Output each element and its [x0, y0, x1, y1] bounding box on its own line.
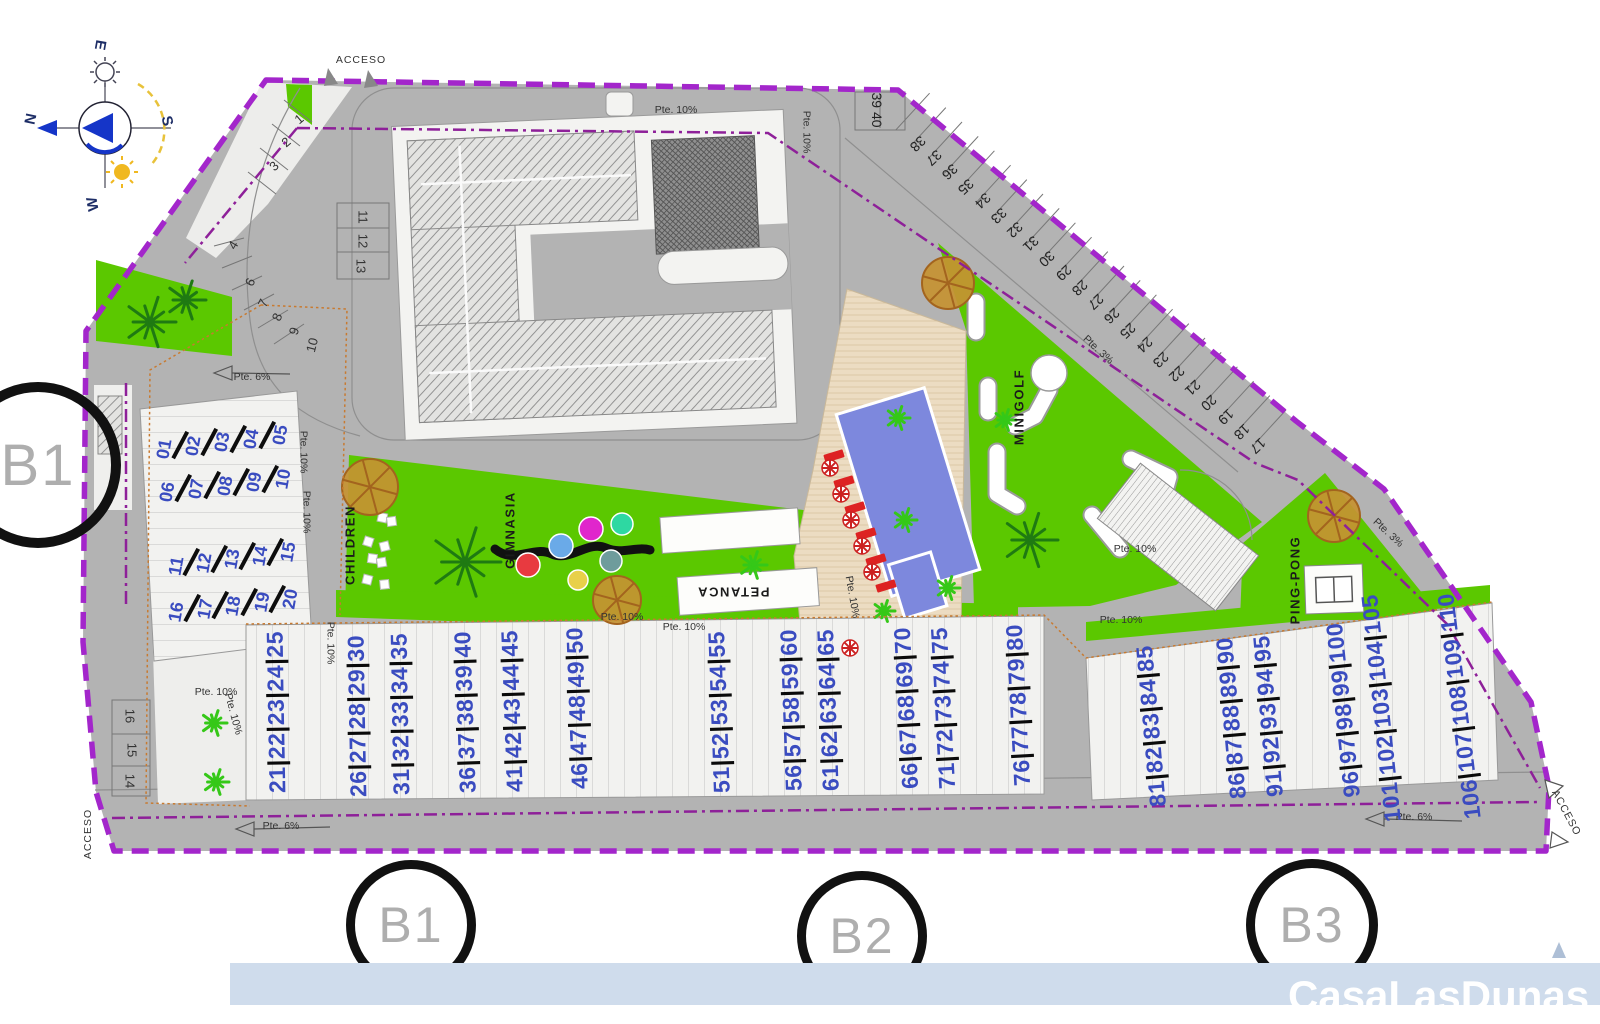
- unit-divider: |: [451, 691, 478, 699]
- unit-number-85: 85: [1131, 644, 1159, 673]
- unit-number-40: 40: [449, 631, 476, 658]
- unit-number-97: 97: [1333, 736, 1362, 765]
- unit-number-94: 94: [1251, 668, 1279, 697]
- unit-number-26: 26: [345, 770, 371, 797]
- slope-label-13: Pte. 6%: [263, 821, 300, 832]
- unit-number-95: 95: [1248, 634, 1276, 663]
- unit-number-110: 110: [1432, 592, 1463, 633]
- unit-divider: |: [894, 721, 921, 730]
- unit-row-26-30: 26|27|28|29|30: [345, 635, 372, 797]
- unit-number-74: 74: [927, 660, 954, 688]
- unit-number-84: 84: [1134, 678, 1162, 707]
- unit-number-63: 63: [814, 696, 841, 723]
- unit-divider: |: [564, 721, 591, 729]
- unit-divider: |: [566, 755, 593, 763]
- block-marker-b1-label: B1: [378, 896, 443, 954]
- unit-number-67: 67: [894, 728, 921, 756]
- unit-number-92: 92: [1257, 735, 1285, 764]
- unit-divider: |: [563, 687, 590, 695]
- parking-number-10: 10: [304, 336, 320, 353]
- unit-number-87: 87: [1220, 737, 1248, 766]
- square-building: [651, 136, 759, 254]
- unit-number-50: 50: [561, 627, 588, 654]
- unit-number-55: 55: [703, 631, 730, 658]
- slope-label-6: Pte. 10%: [601, 612, 644, 623]
- unit-divider: |: [780, 757, 807, 765]
- unit-number-98: 98: [1329, 702, 1358, 731]
- unit-number-109: 109: [1438, 637, 1469, 680]
- slope-label-7: Pte. 10%: [663, 622, 706, 633]
- unit-number-75: 75: [926, 626, 953, 654]
- unit-number-36: 36: [454, 766, 481, 793]
- parking-number-12: 12: [357, 234, 370, 248]
- unit-number-20: 20: [279, 588, 300, 611]
- unit-divider: |: [499, 724, 526, 732]
- unit-divider: |: [387, 727, 414, 735]
- unit-number-71: 71: [933, 762, 960, 790]
- compass-west-label: W: [84, 196, 101, 213]
- unit-number-57: 57: [779, 730, 806, 757]
- parking-number-16: 16: [124, 709, 137, 723]
- main-building: [392, 109, 797, 440]
- unit-number-105: 105: [1356, 593, 1386, 635]
- unit-number-39: 39: [450, 664, 477, 691]
- block-marker-b2-label: B2: [829, 907, 894, 965]
- amenity-minigolf-label: MINIGOLF: [1013, 369, 1026, 445]
- slope-label-8: Pte. 10%: [325, 622, 336, 665]
- unit-number-51: 51: [708, 766, 735, 793]
- slope-label-12: Pte. 6%: [234, 372, 271, 383]
- parking-number-14: 14: [124, 774, 137, 788]
- unit-divider: |: [929, 687, 956, 696]
- unit-divider: |: [344, 695, 371, 703]
- unit-number-82: 82: [1140, 745, 1168, 774]
- unit-divider: |: [263, 691, 290, 699]
- unit-number-22: 22: [263, 732, 289, 759]
- unit-number-108: 108: [1444, 684, 1475, 727]
- unit-number-24: 24: [262, 665, 288, 692]
- unit-divider: |: [454, 759, 481, 767]
- slope-label-3: Pte. 10%: [301, 491, 312, 534]
- unit-number-32: 32: [387, 734, 413, 761]
- unit-divider: |: [388, 761, 415, 769]
- unit-row-31-35: 31|32|33|34|35: [388, 633, 415, 795]
- unit-number-35: 35: [386, 633, 412, 660]
- unit-number-38: 38: [451, 698, 478, 725]
- unit-number-54: 54: [704, 664, 731, 691]
- unit-divider: |: [264, 759, 291, 767]
- amenity-gimnasia-label: GIMNASIA: [504, 491, 517, 569]
- unit-number-31: 31: [388, 768, 414, 795]
- watermark-arrow-icon: [1552, 942, 1566, 958]
- unit-divider: |: [501, 758, 528, 766]
- unit-number-64: 64: [813, 662, 840, 689]
- unit-divider: |: [1006, 718, 1033, 727]
- unit-divider: |: [777, 689, 804, 697]
- unit-divider: |: [931, 721, 958, 730]
- slope-label-0: Pte. 10%: [655, 105, 698, 116]
- unit-number-27: 27: [344, 736, 370, 763]
- unit-number-58: 58: [777, 696, 804, 723]
- watermark-text: CasaLasDunas: [1288, 972, 1589, 1020]
- unit-number-43: 43: [498, 697, 525, 724]
- unit-number-47: 47: [565, 728, 592, 755]
- unit-number-106: 106: [1455, 778, 1486, 821]
- slope-label-9: Pte. 10%: [1100, 615, 1143, 626]
- unit-number-49: 49: [562, 660, 589, 687]
- slope-label-1: Pte. 10%: [801, 111, 812, 154]
- unit-divider: |: [708, 759, 735, 767]
- unit-number-10: 10: [272, 468, 293, 491]
- unit-divider: |: [778, 723, 805, 731]
- unit-number-42: 42: [500, 731, 527, 758]
- unit-divider: |: [892, 687, 919, 696]
- ping-pong-table: [1304, 564, 1364, 614]
- unit-number-21: 21: [264, 766, 290, 793]
- unit-number-15: 15: [277, 541, 298, 564]
- unit-number-68: 68: [892, 694, 919, 722]
- unit-divider: |: [386, 659, 413, 667]
- unit-number-30: 30: [343, 635, 369, 662]
- compass-rose: [37, 57, 171, 188]
- unit-number-45: 45: [496, 630, 523, 657]
- unit-number-104: 104: [1361, 640, 1391, 682]
- unit-number-69: 69: [890, 660, 917, 688]
- unit-number-33: 33: [387, 700, 413, 727]
- unit-number-83: 83: [1137, 712, 1165, 741]
- unit-number-62: 62: [816, 730, 843, 757]
- unit-number-93: 93: [1254, 702, 1282, 731]
- unit-number-73: 73: [929, 694, 956, 722]
- unit-divider: |: [932, 754, 959, 763]
- unit-number-96: 96: [1336, 769, 1365, 798]
- unit-number-59: 59: [776, 662, 803, 689]
- unit-number-72: 72: [931, 728, 958, 756]
- unit-divider: |: [263, 725, 290, 733]
- site-plan-graphic: [0, 0, 1600, 1024]
- unit-divider: |: [344, 729, 371, 737]
- unit-number-05: 05: [269, 424, 290, 447]
- block-marker-left-label: B1: [1, 432, 76, 499]
- parking-number-11: 11: [357, 210, 370, 224]
- access-label-bottom-left: ACCESO: [83, 809, 94, 859]
- amenity-pingpong-label: PING-PONG: [1289, 536, 1302, 625]
- unit-divider: |: [815, 723, 842, 731]
- unit-divider: |: [814, 689, 841, 697]
- unit-number-90: 90: [1211, 636, 1239, 665]
- unit-number-65: 65: [812, 629, 839, 656]
- unit-divider: |: [498, 690, 525, 698]
- unit-number-99: 99: [1326, 668, 1355, 697]
- unit-number-25: 25: [262, 631, 288, 658]
- unit-number-66: 66: [896, 762, 923, 790]
- unit-number-53: 53: [705, 698, 732, 725]
- unit-number-61: 61: [817, 764, 844, 791]
- parking-number-13: 13: [355, 259, 368, 273]
- unit-divider: |: [705, 691, 732, 699]
- unit-number-100: 100: [1321, 622, 1351, 664]
- unit-number-77: 77: [1006, 725, 1033, 753]
- unit-number-78: 78: [1004, 691, 1031, 719]
- unit-number-48: 48: [563, 694, 590, 721]
- unit-number-56: 56: [780, 764, 807, 791]
- amenity-petanca-label: PETANCA: [696, 586, 769, 599]
- unit-number-41: 41: [501, 765, 528, 792]
- unit-number-91: 91: [1260, 769, 1288, 798]
- unit-divider: |: [452, 725, 479, 733]
- unit-number-44: 44: [497, 663, 524, 690]
- unit-number-34: 34: [386, 667, 412, 694]
- unit-number-79: 79: [1002, 657, 1029, 685]
- unit-divider: |: [1004, 684, 1031, 693]
- unit-number-89: 89: [1214, 670, 1242, 699]
- unit-divider: |: [817, 757, 844, 765]
- unit-number-29: 29: [343, 669, 369, 696]
- amenity-children-label: CHILDREN: [344, 505, 357, 585]
- unit-number-70: 70: [889, 626, 916, 654]
- site-plan: B1 B1 B2 B3 CasaLasDunas ACCESO ACCESO A…: [0, 0, 1600, 1024]
- unit-number-80: 80: [1001, 623, 1028, 651]
- slope-label-11: Pte. 10%: [1114, 544, 1157, 555]
- unit-divider: |: [345, 763, 372, 771]
- unit-number-23: 23: [263, 698, 289, 725]
- unit-divider: |: [343, 661, 370, 669]
- parking-pair-39-40: 39 40: [870, 92, 884, 127]
- unit-number-86: 86: [1223, 771, 1251, 800]
- parking-number-15: 15: [126, 743, 139, 757]
- unit-number-107: 107: [1449, 731, 1480, 774]
- unit-divider: |: [262, 657, 289, 665]
- unit-divider: |: [895, 754, 922, 763]
- unit-number-60: 60: [775, 629, 802, 656]
- unit-divider: |: [1007, 751, 1034, 760]
- unit-number-76: 76: [1008, 759, 1035, 787]
- unit-number-81: 81: [1143, 779, 1171, 808]
- unit-number-101: 101: [1376, 781, 1406, 823]
- unit-number-28: 28: [344, 702, 370, 729]
- unit-number-37: 37: [453, 732, 480, 759]
- unit-divider: |: [706, 725, 733, 733]
- unit-divider: |: [387, 693, 414, 701]
- slope-label-2: Pte. 10%: [298, 431, 309, 474]
- unit-number-102: 102: [1371, 734, 1401, 776]
- unit-number-46: 46: [566, 762, 593, 789]
- block-marker-b3-label: B3: [1279, 896, 1344, 954]
- access-label-top: ACCESO: [336, 55, 386, 66]
- unit-number-103: 103: [1366, 687, 1396, 729]
- unit-number-52: 52: [707, 732, 734, 759]
- unit-number-88: 88: [1217, 704, 1245, 733]
- unit-row-21-25: 21|22|23|24|25: [264, 631, 291, 793]
